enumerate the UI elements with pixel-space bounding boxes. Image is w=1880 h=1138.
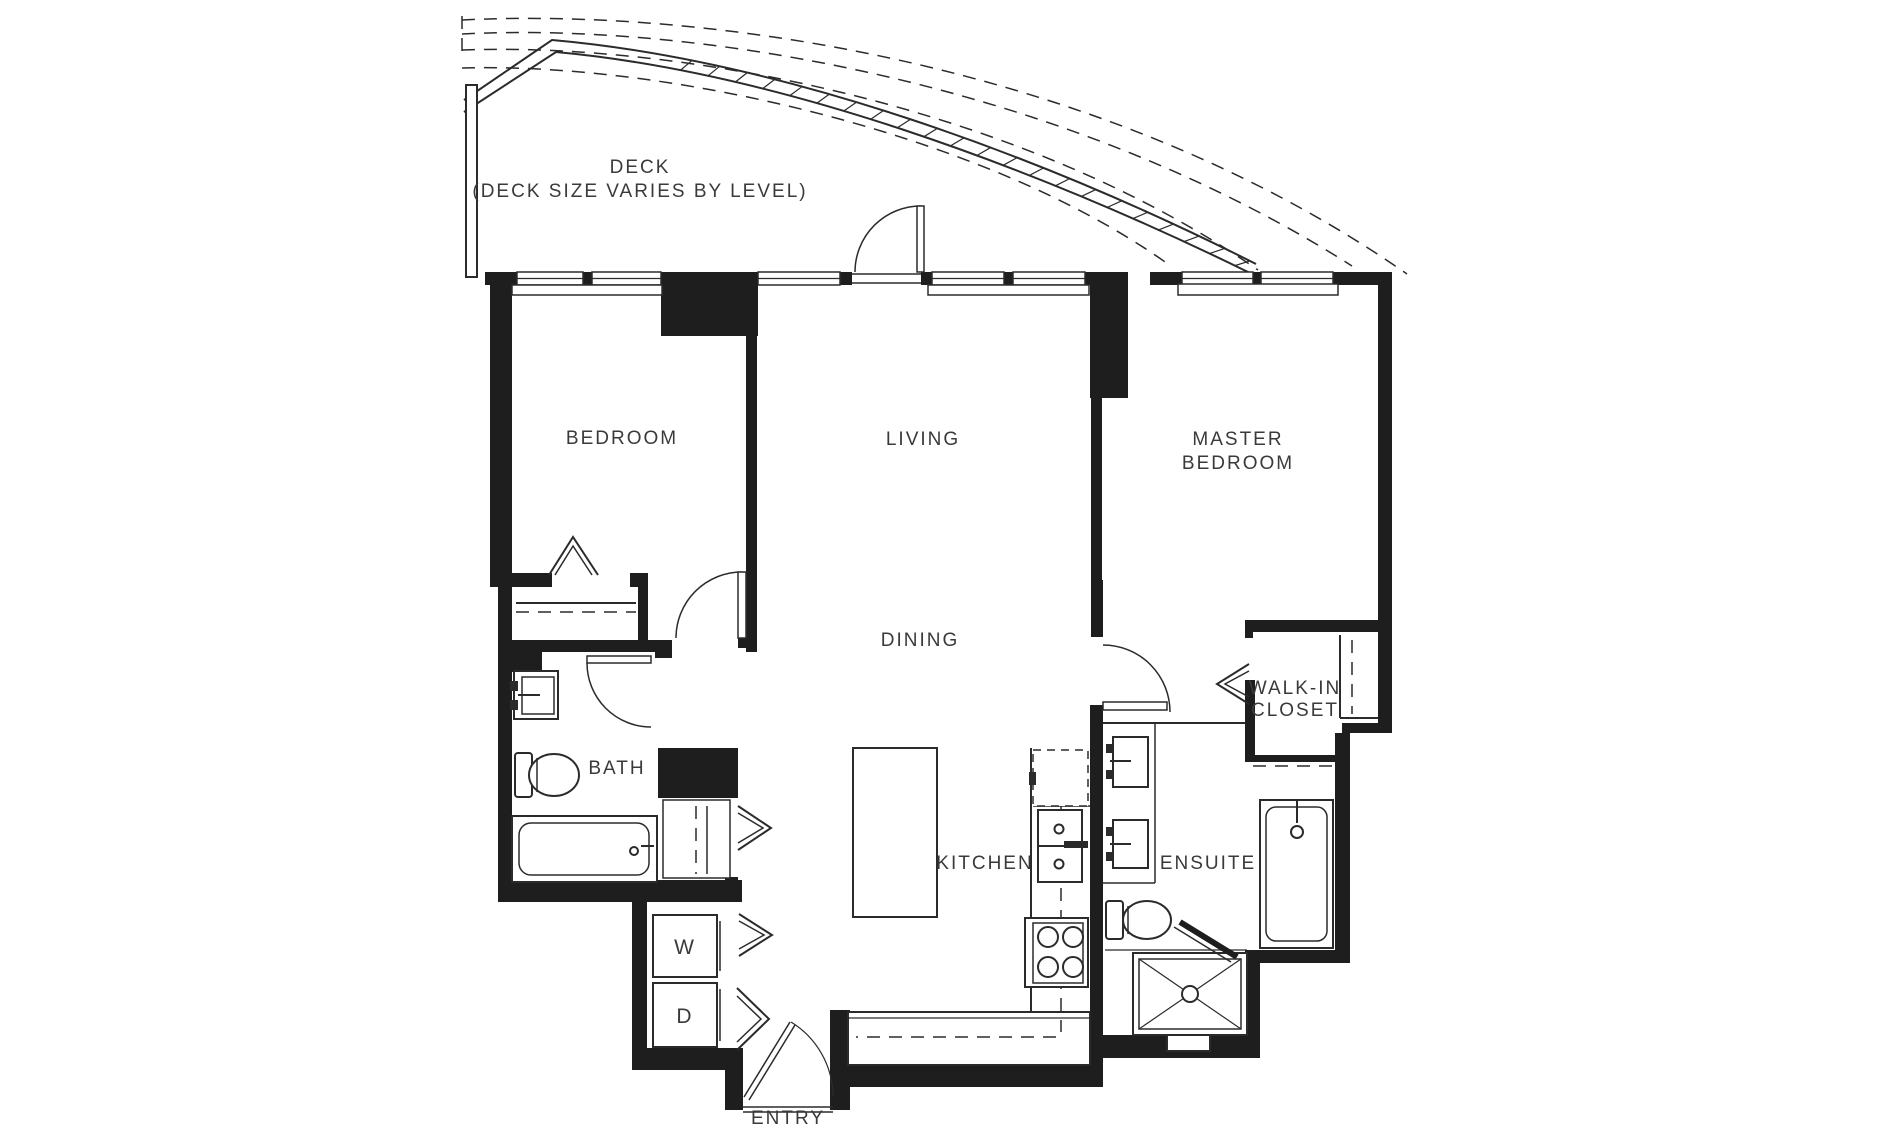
ensuite-vanity (1103, 723, 1155, 883)
master-label-line2: BEDROOM (1182, 453, 1294, 474)
refrigerator (1029, 750, 1088, 806)
closet-hanger-symbol (549, 537, 598, 575)
ensuite-bathtub (1260, 800, 1333, 948)
bath-door (587, 656, 651, 727)
deck-railing-outer (464, 40, 1256, 264)
deck-railing-hatch (681, 60, 1250, 265)
entry-label: ENTRY (751, 1108, 825, 1129)
master-label-line1: MASTER (1192, 429, 1283, 450)
shower-stall (1105, 922, 1247, 1035)
deck-railing-inner (464, 52, 1250, 273)
kitchen-island (853, 748, 937, 917)
shower-niche (1167, 1035, 1210, 1051)
deck-door (855, 206, 924, 272)
stove-cooktop (1025, 918, 1088, 987)
bedroom-closet (516, 603, 636, 612)
bath-toilet (515, 753, 579, 797)
kitchen-double-sink (1038, 810, 1088, 882)
linen-closet (663, 800, 730, 878)
deck-area (462, 16, 1407, 277)
deck-dashed-arc-2 (462, 32, 1352, 266)
walkin-label-line1: WALK-IN (1249, 678, 1341, 699)
kitchen-label: KITCHEN (936, 853, 1033, 874)
bedroom-label: BEDROOM (566, 428, 678, 449)
dryer-label: D (676, 1005, 693, 1028)
deck-note: (DECK SIZE VARIES BY LEVEL) (472, 181, 807, 202)
master-suite-door (1103, 645, 1170, 712)
floorplan-page: DECK (DECK SIZE VARIES BY LEVEL) BEDROOM… (0, 0, 1880, 1138)
window-sills (512, 284, 1338, 295)
bifold-door-linen (738, 806, 771, 850)
bifold-door-washer (739, 914, 772, 956)
bifold-door-dryer (737, 988, 769, 1050)
deck-dashed-arc-4 (462, 68, 1168, 264)
bath-label: BATH (588, 758, 645, 779)
deck-dashed-arc-3 (462, 49, 1258, 270)
walkin-label-line2: CLOSET (1251, 700, 1339, 721)
washer-label: W (674, 936, 696, 959)
bifold-door-walk-in (1217, 664, 1249, 704)
bath-bathtub (512, 816, 657, 882)
living-label: LIVING (886, 429, 960, 450)
entry-door (743, 1022, 833, 1112)
ensuite-label: ENSUITE (1160, 853, 1256, 874)
deck-label: DECK (610, 157, 671, 178)
bedroom-door (676, 572, 746, 638)
floorplan-drawing: DECK (DECK SIZE VARIES BY LEVEL) BEDROOM… (0, 0, 1880, 1138)
ensuite-toilet (1106, 901, 1171, 939)
bath-vanity-sink (510, 671, 558, 719)
dining-label: DINING (881, 630, 960, 651)
